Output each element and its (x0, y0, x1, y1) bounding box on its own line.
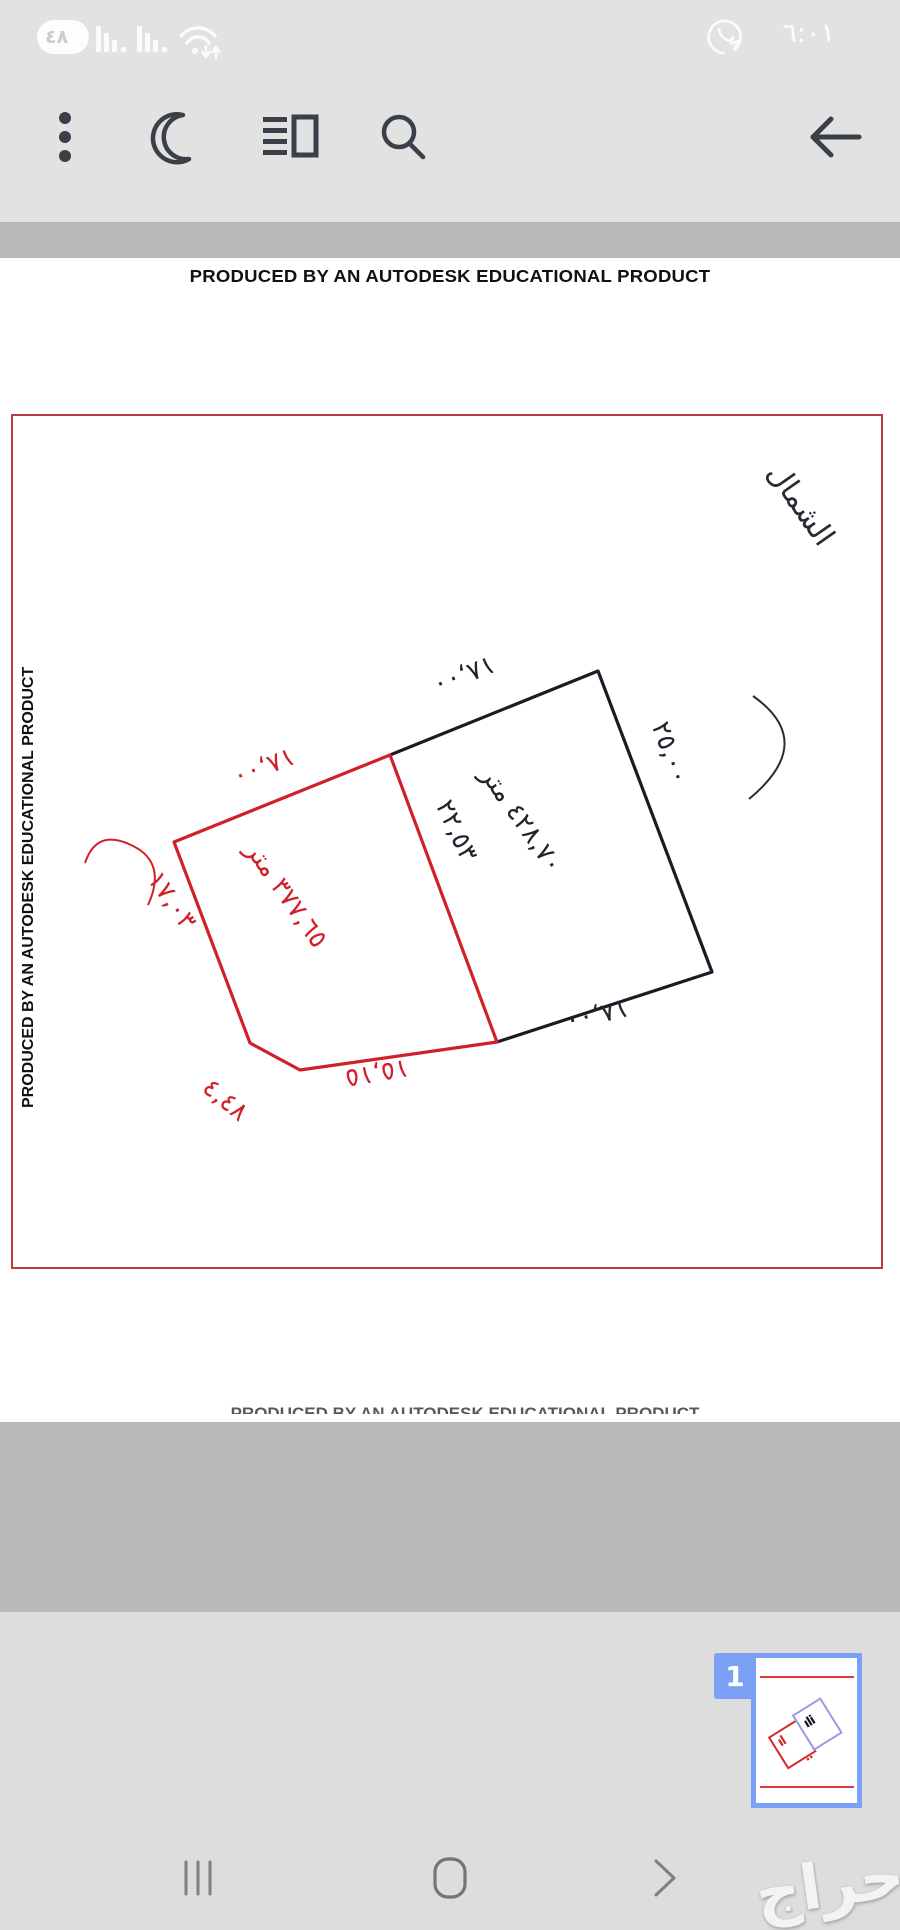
battery-icon: ٤٨ (37, 20, 89, 54)
nav-back-button[interactable] (648, 1858, 682, 1898)
clock: ٦:٠١ (782, 18, 835, 49)
moon-icon (150, 109, 206, 165)
dimension-arc-black (749, 696, 785, 799)
page-number: 1 (725, 1660, 744, 1693)
battery-percent: ٤٨ (45, 26, 68, 48)
signal-sim1-icon (96, 24, 132, 60)
viewer-gap-top (0, 222, 900, 258)
page-number-badge: 1 (714, 1653, 756, 1699)
thumbnail-border-line-bottom (760, 1786, 854, 1788)
wifi-icon (178, 22, 224, 64)
reader-view-button[interactable] (255, 102, 325, 172)
status-bar: ٤٨ ٦:٠١ (0, 0, 900, 85)
viewer-gap-bottom (0, 1422, 900, 1612)
signal-sim2-icon (137, 24, 173, 60)
reader-view-icon (261, 113, 319, 161)
search-button[interactable] (367, 102, 437, 172)
kebab-menu-button[interactable] (30, 102, 100, 172)
back-arrow-icon (805, 113, 865, 161)
nav-recents-button[interactable] (178, 1858, 218, 1898)
thumbnail-border-line-top (760, 1676, 854, 1678)
dimension-arc-red (85, 840, 155, 905)
back-button[interactable] (800, 102, 870, 172)
kebab-menu-icon (58, 111, 72, 163)
nav-home-button[interactable] (430, 1856, 470, 1900)
dark-mode-button[interactable] (143, 102, 213, 172)
app-screen: ٤٨ ٦:٠١ (0, 0, 900, 1930)
search-icon (375, 110, 429, 164)
whatsapp-icon (705, 15, 745, 55)
